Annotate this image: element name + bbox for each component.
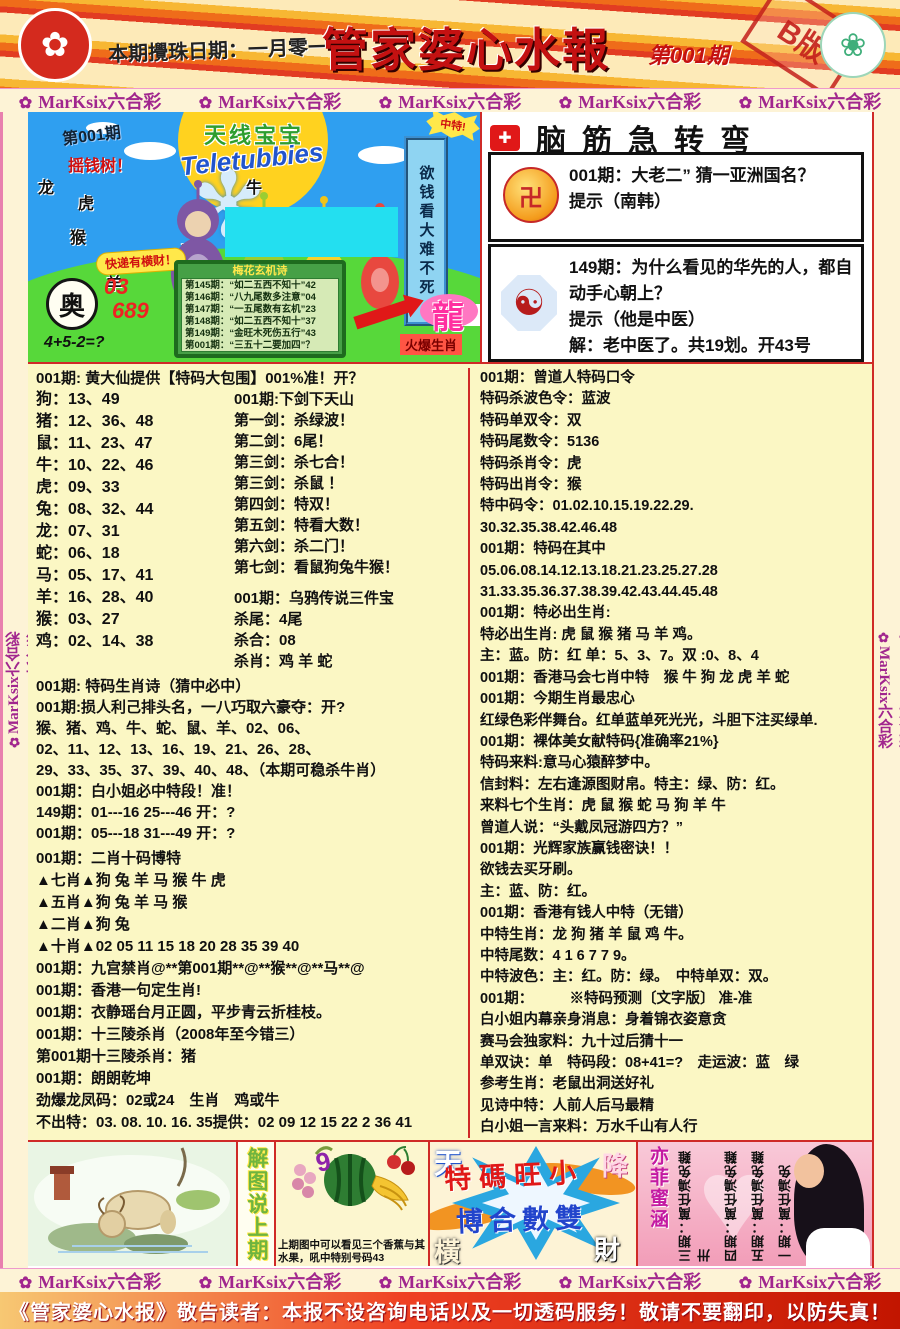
flipped-column: 五期：萬任鴻免難 xyxy=(749,1146,768,1262)
teaser-answer: 解：老中医了。共19划。开43号 xyxy=(569,333,855,359)
explain-last-issue: 解图说上期 xyxy=(238,1142,276,1266)
zodiac-row: 鼠：11、23、47 xyxy=(36,433,234,455)
text-line: ▲五肖▲狗 兔 羊 马 猴 xyxy=(36,892,464,914)
text-line: 曾道人说：“头戴凤冠游四方？” xyxy=(480,818,866,839)
chalkboard-line: 第147期：“一五尾数有玄机”23 xyxy=(185,304,335,316)
band-label: MarKsix六合彩 xyxy=(578,92,701,112)
zodiac-char: 龙 xyxy=(38,174,54,198)
girl-shirt xyxy=(806,1228,870,1266)
text-line: 红绿色彩伴舞台。红单蓝单死光光，斗胆下注买绿单. xyxy=(480,711,866,732)
band-item: ✿MarKsix六合彩 xyxy=(739,1268,881,1294)
chalkboard-line: 第148期：“如二五西不知十”37 xyxy=(185,316,335,328)
swastika-coin-icon: 卍 xyxy=(503,167,559,223)
slogan-bottom: 博合數雙 xyxy=(455,1196,588,1240)
zodiac-char: 猴 xyxy=(70,224,86,248)
zodiac-row: 兔：08、32、44 xyxy=(36,499,234,521)
chalkboard-line: 第149期：“金旺木死伤五行”43 xyxy=(185,328,335,340)
zodiac-row: 鸡：02、14、38 xyxy=(36,631,234,653)
text-line: 信封料：左右逢源图财帛。特主：绿、防：红。 xyxy=(480,775,866,796)
text-line: 001期：十三陵杀肖（2008年至今错三） xyxy=(36,1024,464,1046)
flower-icon: ✿ xyxy=(739,1275,752,1292)
text-line: 白小姐内幕亲身消息：身着锦衣姿意贪 xyxy=(480,1010,866,1031)
band-item: ✿MarKsix六合彩 xyxy=(199,88,341,114)
text-line: 猴、猪、鸡、牛、蛇、鼠、羊、02、06、 xyxy=(36,718,464,739)
text-line: 特码杀肖令：虎 xyxy=(480,454,866,475)
band-label: MarKsix六合彩 xyxy=(38,1272,161,1292)
tips-section: 001期: 黄大仙提供【特码大包围】001%准！开？ 狗：13、49猪：12、3… xyxy=(28,364,872,1142)
girl-photo xyxy=(776,1142,872,1266)
band-item: ✿MarKsix六合彩 xyxy=(739,88,881,114)
teaser-hint: 提示（南韩） xyxy=(569,189,855,215)
text-line: 001期：特码在其中 xyxy=(480,539,866,560)
text-line: 001期：今期生肖最忠心 xyxy=(480,689,866,710)
zodiac-row: 狗：13、49 xyxy=(36,389,234,411)
flipped-column: 三期：萬任鴻免難卅 xyxy=(676,1146,714,1262)
zodiac-poem-block: 001期: 特码生肖诗（猜中必中）001期:损人利己排头名，一八巧取六豪夺：开?… xyxy=(36,676,464,844)
text-line: 特码来料:意马心猿醉梦中。 xyxy=(480,753,866,774)
sword-line: 第一剑：杀绿波！ xyxy=(234,410,399,431)
text-line: 001期:损人利己排头名，一八巧取六豪夺：开? xyxy=(36,697,464,718)
ox-illustration xyxy=(28,1142,236,1266)
rail-item: ✿MarKsix六合彩 xyxy=(895,631,900,749)
sword-line: 第二剑：6尾！ xyxy=(234,431,399,452)
dragon-logo: 龍 xyxy=(432,292,464,338)
band-label: MarKsix六合彩 xyxy=(398,1272,521,1292)
band-item: ✿MarKsix六合彩 xyxy=(19,88,161,114)
zodiac-row: 猪：12、36、48 xyxy=(36,411,234,433)
right-column: 001期：曾道人特码口令特码杀波色令：蓝波特码单双令：双特码尾数令：5136特码… xyxy=(474,368,866,1138)
band-label: MarKsix六合彩 xyxy=(578,1272,701,1292)
flower-icon: ✿ xyxy=(199,95,212,112)
content-frame: ✻ 天线宝宝 Teletubbies 第001期 摇钱树！ 龙虎牛猴马羊鼠 xyxy=(28,112,872,1268)
section-header: 001期: 黄大仙提供【特码大包围】001%准！开？ xyxy=(36,368,464,389)
text-line: 参考生肖：老鼠出洞送好礼 xyxy=(480,1074,866,1095)
text-line: 001期：九宫禁肖@**第001期**@**猴**@**马**@ xyxy=(36,958,464,980)
text-line: 001期: 特码生肖诗（猜中必中） xyxy=(36,676,464,697)
top-section: ✻ 天线宝宝 Teletubbies 第001期 摇钱树！ 龙虎牛猴马羊鼠 xyxy=(28,112,872,364)
text-line: 001期：二肖十码博特 xyxy=(36,848,464,870)
hongkong-emblem-icon: ✿ xyxy=(18,8,92,82)
text-line: 02、11、12、13、16、19、21、26、28、 xyxy=(36,739,464,760)
marksix-band-bottom: ✿MarKsix六合彩✿MarKsix六合彩✿MarKsix六合彩✿MarKsi… xyxy=(0,1268,900,1294)
censor-box xyxy=(225,207,398,257)
promo-code-2: 689 xyxy=(112,298,149,324)
band-label: MarKsix六合彩 xyxy=(218,1272,341,1292)
sword-line: 第三剑：杀鼠 ！ xyxy=(234,473,399,494)
band-label: MarKsix六合彩 xyxy=(758,1272,881,1292)
fruit-caption-line2: 水果，吼中特别号码43 xyxy=(278,1252,425,1265)
vertical-slogan: 欲钱看大难不死 xyxy=(416,165,437,298)
corner-char: 降 xyxy=(602,1146,628,1183)
text-line: 001期：朗朗乾坤 xyxy=(36,1068,464,1090)
cloud-icon xyxy=(358,146,410,164)
corner-char: 財 xyxy=(594,1230,620,1266)
text-line: 中特生肖：龙 狗 猪 羊 鼠 鸡 牛。 xyxy=(480,925,866,946)
teaser-question: 149期：为什么看见的华先的人，都自动手心朝上？ xyxy=(569,255,855,307)
flower-icon: ✿ xyxy=(19,95,32,112)
brain-teaser-panel: ✚ 脑筋急转弯 卍 001期：大老二” 猜一亚洲国名？ 提示（南韩） ☯ 149… xyxy=(482,112,872,362)
fruit-caption-line1: 上期图中可以看见三个香蕉与其 xyxy=(278,1239,425,1252)
macau-emblem-icon: ❀ xyxy=(820,12,886,78)
explain-label: 解图说上期 xyxy=(241,1147,271,1262)
fruit-picture: 9 上期图中可以看见三个香蕉与其 水果，吼中特别号码43 xyxy=(276,1142,430,1266)
teaser-box-2: ☯ 149期：为什么看见的华先的人，都自动手心朝上？ 提示（他是中医） 解：老中… xyxy=(488,244,864,362)
text-line: 001期：光辉家族赢钱密诀！！ xyxy=(480,839,866,860)
zodiac-number-list: 狗：13、49猪：12、36、48鼠：11、23、47牛：10、22、46虎：0… xyxy=(36,389,234,672)
text-line: 29、33、35、37、39、40、48、（本期可稳杀牛肖） xyxy=(36,760,464,781)
draw-date-note: 本期攪珠日期：一月零一日 xyxy=(108,30,349,67)
flower-icon: ✿ xyxy=(739,95,752,112)
text-line: ▲七肖▲狗 兔 羊 马 猴 牛 虎 xyxy=(36,870,464,892)
photo-panel: ♥ 亦菲蜜涵 三期：萬任鴻免難卅四期：萬任鴻免難五期：萬任鴻免難一期：萬任鴻免 xyxy=(638,1142,872,1266)
flower-icon: ✿ xyxy=(877,631,892,646)
photo-caption-vertical: 亦菲蜜涵 xyxy=(644,1146,671,1230)
zodiac-row: 马：05、17、41 xyxy=(36,565,234,587)
poem-chalkboard: 梅花玄机诗 第145期：“如二五西不知十”42第146期：“八九尾数多注意”04… xyxy=(174,260,346,358)
yinyang-icon: ☯ xyxy=(501,275,557,331)
sword-line: 001期:下剑下天山 xyxy=(234,389,399,410)
chalkboard-title: 梅花玄机诗 xyxy=(181,265,339,278)
text-line: ▲十肖▲02 05 11 15 18 20 28 35 39 40 xyxy=(36,936,464,958)
text-line: 31.33.35.36.37.38.39.42.43.44.45.48 xyxy=(480,582,866,603)
promo-formula: 4+5-2=? xyxy=(44,334,104,352)
chalkboard-line: 第001期：“三五十二要加四”？ xyxy=(185,340,335,352)
text-line: 001期：香港有钱人中特（无错） xyxy=(480,903,866,924)
text-line: 001期：05---18 31---49 开：? xyxy=(36,823,464,844)
text-line: 30.32.35.38.42.46.48 xyxy=(480,518,866,539)
text-line: 劲爆龙凤码：02或24 生肖 鸡或牛 xyxy=(36,1090,464,1112)
teletubbies-promo: ✻ 天线宝宝 Teletubbies 第001期 摇钱树！ 龙虎牛猴马羊鼠 xyxy=(28,112,482,362)
chalkboard-line: 第146期：“八九尾数多注意”04 xyxy=(185,292,335,304)
rail-label: MarKsix六合彩 xyxy=(6,631,22,734)
sword-line: 第七剑：看鼠狗兔牛猴！ xyxy=(234,557,399,578)
text-line: 05.06.08.14.12.13.18.21.23.25.27.28 xyxy=(480,561,866,582)
sword-line: 第三剑：杀七合！ xyxy=(234,452,399,473)
text-line: 不出特：03. 08. 10. 16. 35提供：02 09 12 15 22 … xyxy=(36,1112,464,1134)
text-line: 001期：衣静瑶台月正圆，平步青云折桂枝。 xyxy=(36,1002,464,1024)
flower-icon: ✿ xyxy=(19,1275,32,1292)
band-label: MarKsix六合彩 xyxy=(398,92,521,112)
misc-tips-block: 001期：二肖十码博特▲七肖▲狗 兔 羊 马 猴 牛 虎▲五肖▲狗 兔 羊 马 … xyxy=(36,848,464,1134)
text-line: 001期：香港马会七肖中特 猴 牛 狗 龙 虎 羊 蛇 xyxy=(480,668,866,689)
flower-icon: ✿ xyxy=(379,95,392,112)
flower-icon: ✿ xyxy=(6,734,21,749)
slogan-top: 特碼旺小 xyxy=(443,1150,585,1196)
rail-item: ✿MarKsix六合彩 xyxy=(3,631,24,749)
teaser-question: 001期：大老二” 猜一亚洲国名？ xyxy=(569,163,855,189)
flipped-column: 四期：萬任鴻免難 xyxy=(722,1146,741,1262)
text-line: 欲钱去买牙刷。 xyxy=(480,860,866,881)
flower-icon: ✿ xyxy=(379,1275,392,1292)
zodiac-row: 虎：09、33 xyxy=(36,477,234,499)
text-line: 001期：白小姐必中特段！准！ xyxy=(36,781,464,802)
band-item: ✿MarKsix六合彩 xyxy=(19,1268,161,1294)
dragon-caption: 火爆生肖 xyxy=(400,334,462,355)
text-line: 特码尾数令：5136 xyxy=(480,432,866,453)
masthead: ✿ 本期攪珠日期：一月零一日 管家婆心水報 第001期 B版 ❀ xyxy=(0,0,900,88)
band-item: ✿MarKsix六合彩 xyxy=(559,1268,701,1294)
band-item: ✿MarKsix六合彩 xyxy=(379,88,521,114)
text-line: 特码出肖令：猴 xyxy=(480,475,866,496)
text-line: 特必出生肖: 虎 鼠 猴 猪 马 羊 鸡。 xyxy=(480,625,866,646)
zodiac-row: 蛇：06、18 xyxy=(36,543,234,565)
sword-line: 第五剑：特看大数！ xyxy=(234,515,399,536)
girl-face xyxy=(794,1154,824,1188)
band-item: ✿MarKsix六合彩 xyxy=(559,88,701,114)
band-label: MarKsix六合彩 xyxy=(218,92,341,112)
text-line: ▲二肖▲狗 兔 xyxy=(36,914,464,936)
flower-icon: ✿ xyxy=(559,1275,572,1292)
crow-line: 杀肖：鸡 羊 蛇 xyxy=(234,651,399,672)
sword-tips: 001期:下剑下天山第一剑：杀绿波！第二剑：6尾！第三剑：杀七合！第三剑：杀鼠 … xyxy=(234,389,399,672)
sword-line: 第四剑：特双！ xyxy=(234,494,399,515)
footer-notice: 《管家婆心水报》敬告读者：本报不设咨询电话以及一切透码服务！敬请不要翻印，以防失… xyxy=(9,1296,891,1325)
text-line: 中特波色：主：红。防：绿。 中特单双：双。 xyxy=(480,967,866,988)
newspaper-page: ✿ 本期攪珠日期：一月零一日 管家婆心水報 第001期 B版 ❀ ✿MarKsi… xyxy=(0,0,900,1329)
teaser-box-1: 卍 001期：大老二” 猜一亚洲国名？ 提示（南韩） xyxy=(488,152,864,242)
band-item: ✿MarKsix六合彩 xyxy=(379,1268,521,1294)
marksix-rail-right: ✿MarKsix六合彩✿MarKsix六合彩✿MarKsix六合彩✿MarKsi… xyxy=(872,112,900,1268)
text-line: 149期：01---16 25---46 开：? xyxy=(36,802,464,823)
bottom-strip: 解图说上期 9 上期图中可以看见三个 xyxy=(28,1142,872,1266)
ao-badge: 奥 xyxy=(46,278,98,330)
flower-icon: ✿ xyxy=(199,1275,212,1292)
promo-code-1: 03 xyxy=(104,274,128,300)
promo-issue-label: 第001期 xyxy=(61,119,122,150)
column-divider xyxy=(468,368,470,1138)
zodiac-row: 龙：07、31 xyxy=(36,521,234,543)
marksix-band-top: ✿MarKsix六合彩✿MarKsix六合彩✿MarKsix六合彩✿MarKsi… xyxy=(0,88,900,114)
rail-label: MarKsix六合彩 xyxy=(876,646,892,749)
teaser-hint: 提示（他是中医） xyxy=(569,307,855,333)
crow-legend: 001期：乌鸦传说三件宝杀尾：4尾杀合：08杀肖：鸡 羊 蛇 xyxy=(234,588,399,672)
rail-item: ✿MarKsix六合彩 xyxy=(874,631,895,749)
footer-notice-bar: 《管家婆心水报》敬告读者：本报不设咨询电话以及一切透码服务！敬请不要翻印，以防失… xyxy=(0,1292,900,1329)
band-label: MarKsix六合彩 xyxy=(38,92,161,112)
text-line: 赛马会独家料：九十过后猜十一 xyxy=(480,1032,866,1053)
text-line: 001期：香港一句定生肖! xyxy=(36,980,464,1002)
left-column: 001期: 黄大仙提供【特码大包围】001%准！开？ 狗：13、49猪：12、3… xyxy=(36,368,464,1138)
zodiac-row: 猴：03、27 xyxy=(36,609,234,631)
chalkboard-line: 第145期：“如二五西不知十”42 xyxy=(185,280,335,292)
crow-line: 杀尾：4尾 xyxy=(234,609,399,630)
issue-number: 第001期 xyxy=(648,38,729,70)
text-line: 001期：特必出生肖: xyxy=(480,603,866,624)
text-line: 特中码令：01.02.10.15.19.22.29. xyxy=(480,496,866,517)
flower-icon: ✿ xyxy=(559,95,572,112)
text-line: 特码杀波色令：蓝波 xyxy=(480,389,866,410)
teaser-logo-icon: ✚ xyxy=(490,125,520,151)
text-line: 主：蓝。防：红 单：5、3、7。双 :0、8、4 xyxy=(480,646,866,667)
crow-line: 杀合：08 xyxy=(234,630,399,651)
text-line: 中特尾数：4 1 6 7 7 9。 xyxy=(480,946,866,967)
money-tree-label: 摇钱树！ xyxy=(68,152,132,176)
crow-line: 001期：乌鸦传说三件宝 xyxy=(234,588,399,609)
text-line: 第001期十三陵杀肖：猪 xyxy=(36,1046,464,1068)
fruit-illustration: 9 xyxy=(276,1142,424,1224)
text-line: 001期：裸体美女献特码{准确率21%} xyxy=(480,732,866,753)
text-line: 白小姐一言来料：万水千山有人行 xyxy=(480,1117,866,1138)
slogan-starburst: 天降橫財 特碼旺小 博合數雙 xyxy=(430,1142,638,1266)
text-line: 见诗中特：人前人后马最精 xyxy=(480,1096,866,1117)
text-line: 单双诀：单 特码段：08+41=? 走运波：蓝 绿 xyxy=(480,1053,866,1074)
text-line: 001期：曾道人特码口令 xyxy=(480,368,866,389)
paper-title: 管家婆心水報 xyxy=(322,14,610,80)
text-line: 来料七个生肖：虎 鼠 猴 蛇 马 狗 羊 牛 xyxy=(480,796,866,817)
zodiac-row: 羊：16、28、40 xyxy=(36,587,234,609)
ox-painting xyxy=(28,1142,238,1266)
text-line: 特码单双令：双 xyxy=(480,411,866,432)
sword-line: 第六剑：杀二门！ xyxy=(234,536,399,557)
text-line: 001期： ※特码预测〔文字版〕 准-准 xyxy=(480,989,866,1010)
zodiac-row: 牛：10、22、46 xyxy=(36,455,234,477)
band-label: MarKsix六合彩 xyxy=(758,92,881,112)
zodiac-char: 虎 xyxy=(78,190,94,214)
text-line: 主：蓝、防：红。 xyxy=(480,882,866,903)
band-item: ✿MarKsix六合彩 xyxy=(199,1268,341,1294)
